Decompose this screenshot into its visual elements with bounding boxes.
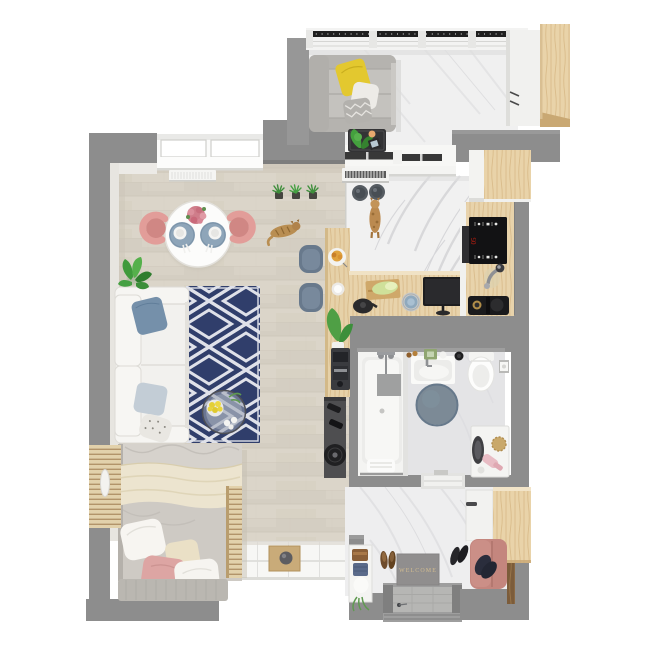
svg-text:WELCOME: WELCOME: [399, 568, 437, 574]
svg-text:05: 05: [470, 237, 478, 245]
